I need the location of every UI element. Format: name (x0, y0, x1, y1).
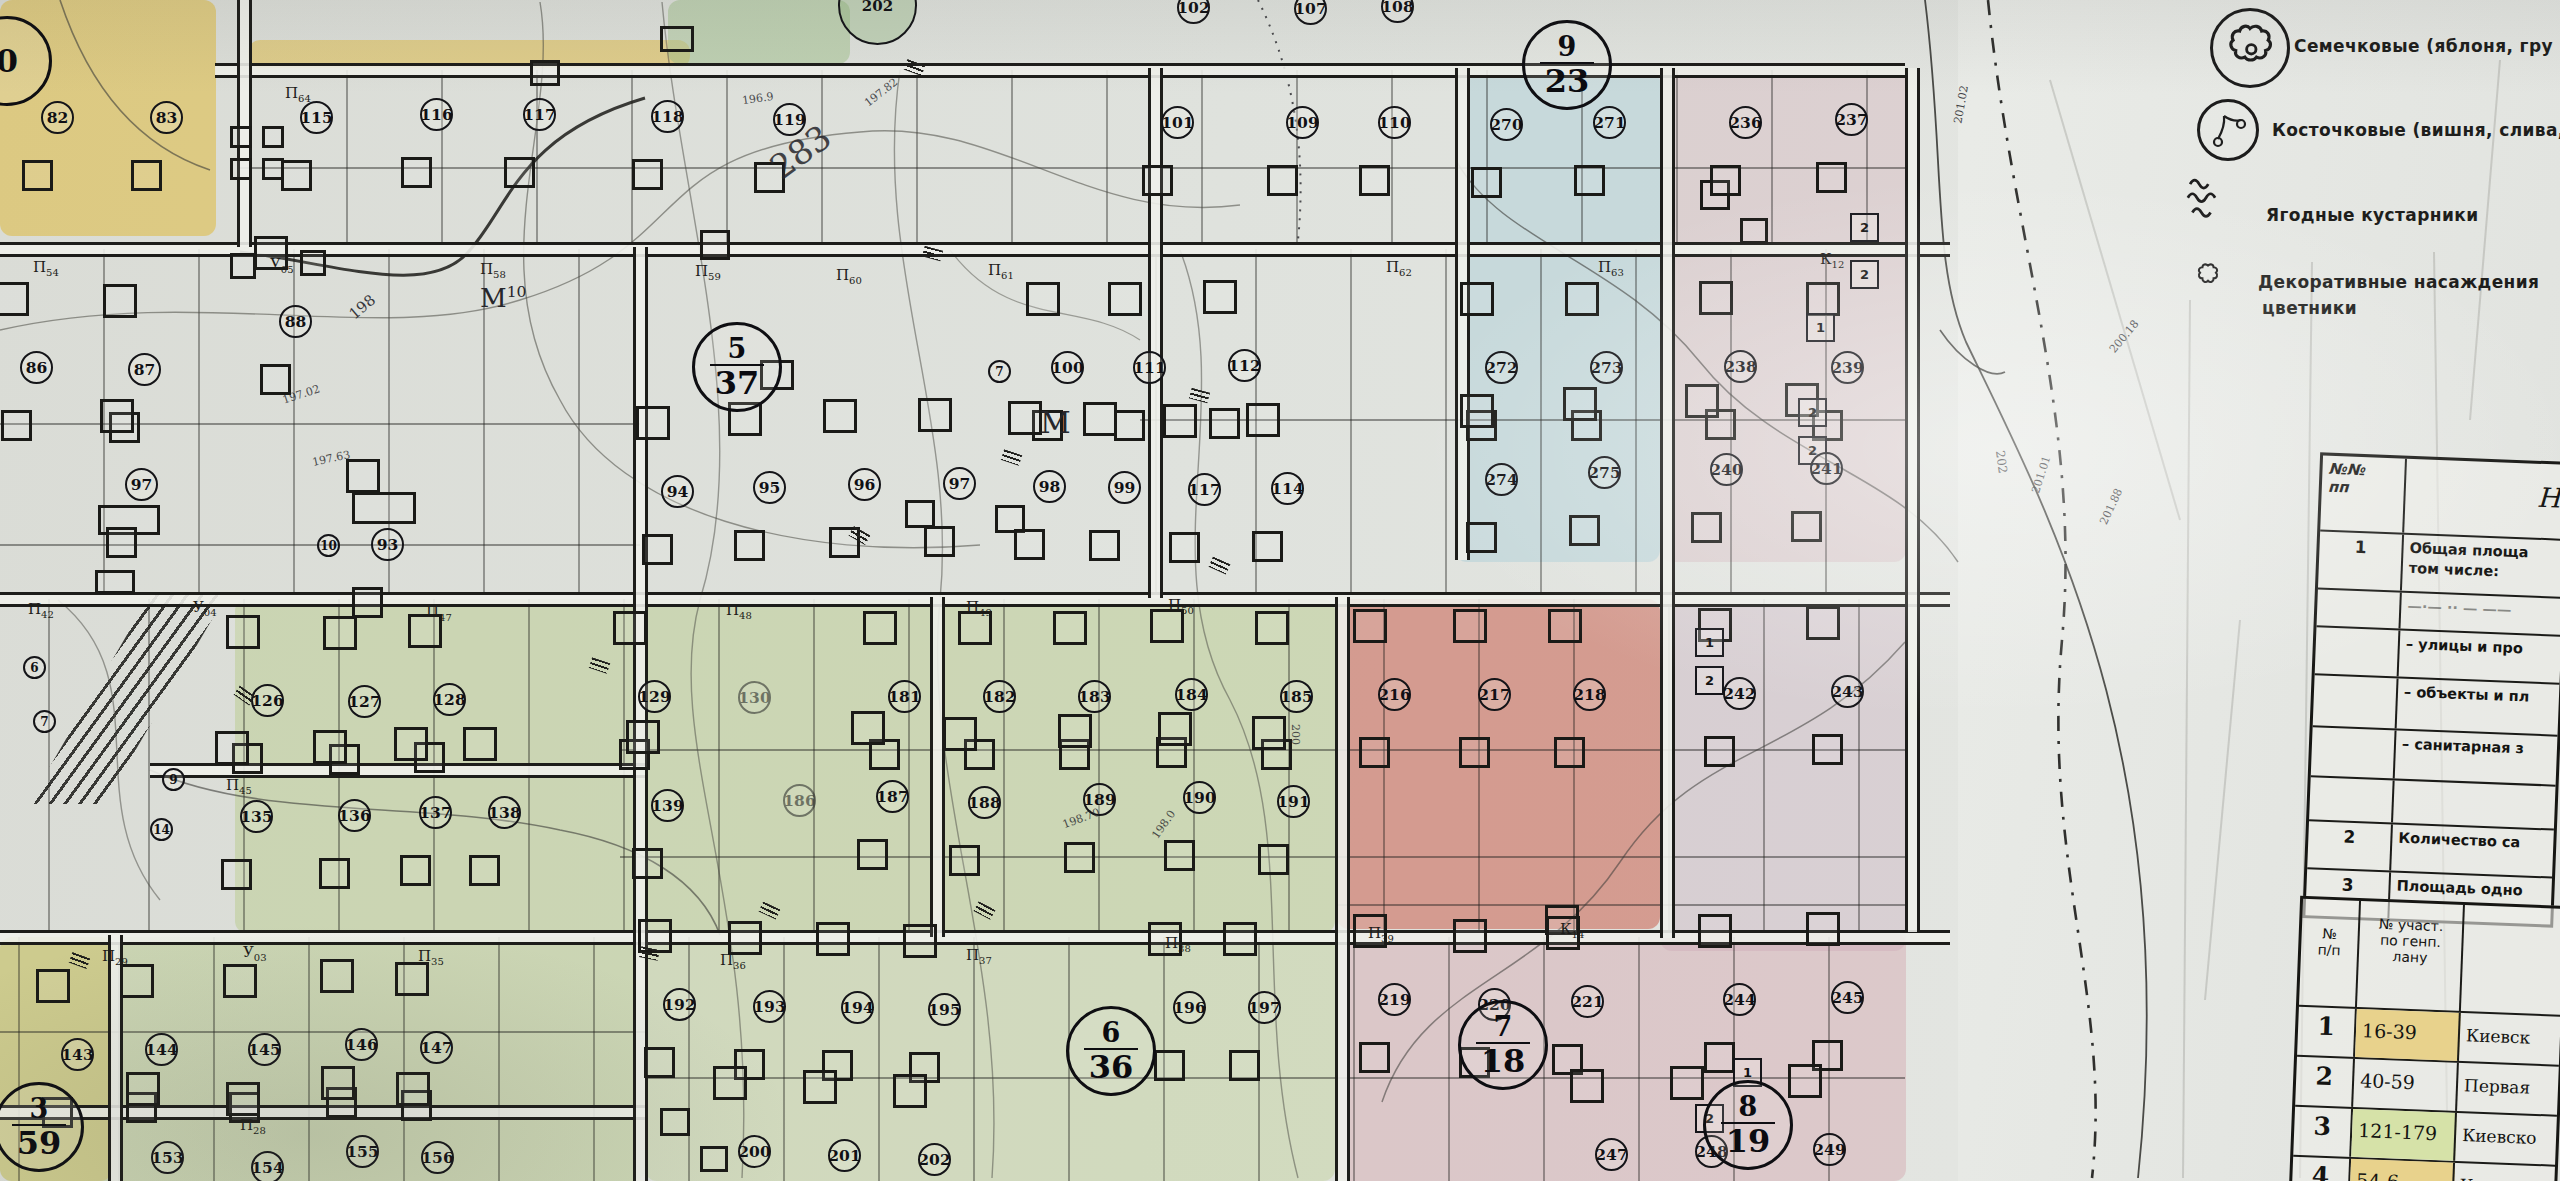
plot-square-x14 (530, 60, 560, 86)
plot-square-a37 (1246, 403, 1280, 437)
plot-square-b0 (22, 160, 53, 191)
t2-header-name (2461, 905, 2560, 1015)
road-horizontal-5 (0, 1105, 645, 1120)
road-vertical-1 (633, 247, 648, 1181)
plot-square-x12 (1740, 218, 1768, 244)
plot-circle-182: 182 (983, 680, 1016, 713)
road-label-П60: П60 (836, 266, 862, 286)
pome-fruit-icon (2210, 8, 2290, 88)
plot-square-a81 (223, 964, 257, 998)
plot-square-a60 (463, 727, 497, 761)
plot-circle-275: 275 (1588, 456, 1621, 489)
map-text-200.18-15: 200.18 (2107, 318, 2142, 356)
map-text-М-1: М (1040, 405, 1071, 440)
road-label-П39: П39 (1368, 924, 1394, 944)
plot-square-x1 (352, 492, 416, 524)
road-label-П38: П38 (1165, 934, 1191, 954)
road-vertical-3 (1148, 68, 1163, 598)
plot-circle-6: 6 (23, 656, 46, 679)
plot-circle-181: 181 (888, 680, 921, 713)
t2-row-2-name: Киевско (2455, 1113, 2557, 1165)
t2-header-num: №п/п (2299, 899, 2361, 1007)
plot-square-a75 (1453, 919, 1487, 953)
plot-circle-221: 221 (1571, 985, 1604, 1018)
plot-square-a30 (636, 406, 670, 440)
map-text-201.88-14: 201.88 (2097, 486, 2125, 526)
road-label-П58: П58 (480, 260, 506, 280)
plot-circle-239: 239 (1831, 351, 1864, 384)
plot-square-a84 (126, 1072, 160, 1106)
road-label-У03: У03 (243, 943, 267, 963)
plot-circle-184: 184 (1175, 678, 1208, 711)
plot-square-b37 (1252, 531, 1283, 562)
plot-circle-82: 82 (41, 101, 74, 134)
plot-circle-193: 193 (753, 990, 786, 1023)
plot-circle-200: 200 (738, 1135, 771, 1168)
plot-square-b63 (857, 839, 888, 870)
plot-circle-97: 97 (943, 467, 976, 500)
plot-square-a40 (1685, 384, 1719, 418)
plot-circle-7: 7 (988, 360, 1011, 383)
plot-square-a64 (943, 717, 977, 751)
plot-circle-183: 183 (1078, 680, 1111, 713)
plot-square-b53 (1459, 737, 1490, 768)
plot-circle-94: 94 (661, 475, 694, 508)
t2-row-1-num: 2 (2295, 1057, 2355, 1107)
map-text-М-0: М10 (480, 283, 526, 313)
section-marker-9-23: 923 (1522, 20, 1612, 110)
t1-row-6-label: Количество са (2391, 824, 2554, 876)
plot-square-b68 (644, 1047, 675, 1078)
plot-circle-145: 145 (248, 1033, 281, 1066)
plot-square-b56 (1812, 734, 1843, 765)
t2-row-2-num: 3 (2293, 1107, 2353, 1157)
plot-circle-191: 191 (1277, 785, 1310, 818)
plot-circle-127: 127 (348, 685, 381, 718)
plot-square-b60 (469, 855, 500, 886)
plot-square-b36 (1169, 532, 1200, 563)
plot-circle-130: 130 (738, 681, 771, 714)
plot-square-b8 (1267, 165, 1298, 196)
plot-square-a92 (1670, 1066, 1704, 1100)
plot-circle-118: 118 (651, 100, 684, 133)
plot-square-b40 (1691, 512, 1722, 543)
road-label-У05: У05 (270, 255, 294, 275)
plot-square-a42 (226, 615, 260, 649)
t1-row-5-label (2393, 780, 2555, 828)
plot-circle-135: 135 (240, 800, 273, 833)
road-label-П37: П37 (966, 946, 992, 966)
plot-square-a52 (1353, 609, 1387, 643)
t2-row-0-range: 16-39 (2355, 1009, 2461, 1061)
plot-square-x19 (700, 1146, 728, 1172)
legend-label-3-line2: цветники (2262, 298, 2357, 318)
plot-square-b29 (352, 587, 383, 618)
plot-square-a63 (851, 711, 885, 745)
plot-circle-197: 197 (1248, 991, 1281, 1024)
road-label-П36: П36 (720, 951, 746, 971)
t1-row-0-label: Общая площатом числе: (2402, 535, 2560, 597)
plot-circle-126: 126 (251, 684, 284, 717)
plot-square-a73 (1223, 922, 1257, 956)
road-vertical-7 (1905, 68, 1920, 932)
plot-square-a45 (613, 611, 647, 645)
plot-square-b11 (1574, 165, 1605, 196)
plot-square-a43 (323, 616, 357, 650)
plot-circle-95: 95 (753, 471, 786, 504)
plot-square-b64 (949, 845, 980, 876)
plot-circle-247: 247 (1595, 1138, 1628, 1171)
section-marker-8-19: 819 (1703, 1080, 1793, 1170)
plot-circle-272: 272 (1485, 351, 1518, 384)
plot-circle-243: 243 (1831, 675, 1864, 708)
plot-circle-190: 190 (1183, 781, 1216, 814)
plot-square-a77 (1698, 914, 1732, 948)
plot-circle-86: 86 (20, 351, 53, 384)
plot-square-b2 (281, 160, 312, 191)
plot-square-a59 (394, 727, 428, 761)
plot-circle-244: 244 (1723, 983, 1756, 1016)
road-label-П63: П63 (1598, 258, 1624, 278)
berry-bush-icon (2182, 176, 2230, 224)
boxed-label-2-6: 2 (1695, 666, 1724, 695)
plot-square-x6 (300, 250, 326, 276)
plot-square-b35 (1089, 530, 1120, 561)
plot-square-a23 (1203, 280, 1237, 314)
legend-label-0: Семечковые (яблоня, гру (2294, 36, 2553, 56)
plot-square-a20 (103, 284, 137, 318)
plot-circle-154: 154 (251, 1151, 284, 1181)
plot-square-a29 (346, 459, 380, 493)
road-label-П47: П47 (426, 603, 452, 623)
plot-square-b28 (106, 527, 137, 558)
plot-circle-242: 242 (1723, 677, 1756, 710)
t2-row-2-range: 121-179 (2351, 1109, 2457, 1161)
plot-square-b59 (400, 855, 431, 886)
plot-square-b30 (642, 534, 673, 565)
section-marker-7-18: 718 (1458, 1000, 1548, 1090)
boxed-label-2-3: 2 (1798, 398, 1827, 427)
road-label-К14: К14 (1560, 920, 1584, 940)
road-label-П48: П48 (726, 601, 752, 621)
plot-circle-186: 186 (783, 784, 816, 817)
plot-circle-110: 110 (1378, 106, 1411, 139)
land-summary-table: №№ппН1Общая площатом числе:—·— ·· — ——– … (2302, 452, 2560, 927)
t2-header-range: № участ.по генп.лану (2357, 901, 2465, 1011)
plot-square-b22 (1114, 410, 1145, 441)
plot-circle-88: 88 (279, 305, 312, 338)
plot-circle-236: 236 (1729, 106, 1762, 139)
plot-square-b23 (1209, 408, 1240, 439)
plot-square-a38 (1460, 394, 1494, 428)
plot-square-x8 (660, 26, 694, 52)
plot-circle-194: 194 (841, 991, 874, 1024)
plot-circle-273: 273 (1590, 351, 1623, 384)
plot-square-b39 (1569, 515, 1600, 546)
boxed-label-2-0: 2 (1850, 213, 1879, 242)
plot-square-b74 (1359, 1042, 1390, 1073)
plot-square-b41 (1791, 511, 1822, 542)
t1-row-4-label: – санитарная з (2395, 731, 2558, 785)
road-label-П50: П50 (1168, 596, 1194, 616)
plot-square-a89 (803, 1070, 837, 1104)
plot-circle-202: 202 (918, 1143, 951, 1176)
plot-circle-14: 14 (150, 818, 173, 841)
plot-square-a33 (918, 398, 952, 432)
road-label-У04: У04 (193, 598, 217, 618)
plot-circle-99: 99 (1108, 471, 1141, 504)
plot-circle-100: 100 (1051, 351, 1084, 384)
road-label-П61: П61 (988, 261, 1014, 281)
plot-square-b31 (734, 530, 765, 561)
plot-square-a27 (1806, 282, 1840, 316)
t2-row-0-name: Киевск (2459, 1013, 2560, 1065)
t2-row-3-name: Украинс (2453, 1163, 2555, 1181)
boxed-label-1-2: 1 (1806, 313, 1835, 342)
plot-circle-188: 188 (968, 786, 1001, 819)
plot-circle-117: 117 (523, 98, 556, 131)
plot-square-a47 (863, 611, 897, 645)
road-label-К12: К12 (1820, 250, 1844, 270)
plot-circle-139: 139 (651, 789, 684, 822)
road-label-П28: П28 (240, 1116, 266, 1136)
road-label-П45: П45 (226, 776, 252, 796)
plot-circle-155: 155 (346, 1135, 379, 1168)
plot-circle-245: 245 (1831, 981, 1864, 1014)
plot-square-a26 (1699, 281, 1733, 315)
plot-square-b9 (1359, 165, 1390, 196)
road-label-П29: П29 (102, 947, 128, 967)
plot-square-b54 (1554, 737, 1585, 768)
plot-square-a83 (395, 962, 429, 996)
plot-square-a56 (1806, 606, 1840, 640)
plot-circle-114: 114 (1271, 472, 1304, 505)
plot-square-b7 (1142, 165, 1173, 196)
plot-square-b65 (1064, 842, 1095, 873)
map-text-201.01-13: 201.01 (2029, 454, 2053, 495)
plot-square-b10 (1471, 167, 1502, 198)
t1-header-name: Н (2404, 459, 2560, 539)
plot-square-b19 (1, 410, 32, 441)
plot-square-a70 (816, 922, 850, 956)
t1-row-3-num (2313, 675, 2399, 728)
t2-row-1-name: Первая (2457, 1063, 2559, 1115)
plot-square-a28 (100, 399, 134, 433)
plot-circle-112: 112 (1228, 349, 1261, 382)
t2-row-3-num: 4 (2291, 1157, 2351, 1181)
plot-square-a36 (1163, 404, 1197, 438)
plot-square-a57 (215, 731, 249, 765)
plot-circle-218: 218 (1573, 678, 1606, 711)
plot-circle-10: 10 (317, 534, 340, 557)
plot-square-a87 (396, 1072, 430, 1106)
plot-square-a90 (893, 1074, 927, 1108)
plot-square-a35 (1083, 402, 1117, 436)
plot-square-a82 (320, 959, 354, 993)
plot-circle-153: 153 (151, 1141, 184, 1174)
plot-circle-146: 146 (345, 1028, 378, 1061)
t1-header-num: №№пп (2320, 455, 2407, 532)
plot-circle-144: 144 (145, 1033, 178, 1066)
plot-square-b1 (131, 160, 162, 191)
plot-circle-101: 101 (1161, 106, 1194, 139)
plot-square-a67 (1252, 716, 1286, 750)
plot-square-b5 (632, 159, 663, 190)
t1-row-1-label: —·— ·· — —— (2400, 593, 2560, 635)
plot-circle-237: 237 (1835, 103, 1868, 136)
plot-circle-271: 271 (1593, 106, 1626, 139)
plot-circle-137: 137 (419, 796, 452, 829)
t1-row-6-num: 2 (2307, 821, 2393, 870)
plot-circle-201: 201 (828, 1139, 861, 1172)
road-vertical-4 (1335, 597, 1350, 1181)
plot-square-a58 (313, 730, 347, 764)
t2-row-3-range: 54-6 (2349, 1159, 2455, 1181)
road-vertical-2 (930, 597, 945, 937)
plot-circle-216: 216 (1378, 678, 1411, 711)
plot-square-a61 (626, 720, 660, 754)
road-label-П35: П35 (418, 947, 444, 967)
plot-square-a34 (1008, 401, 1042, 435)
plot-square-x2 (230, 126, 252, 148)
plot-square-a79 (36, 969, 70, 1003)
road-label-П49: П49 (966, 598, 992, 618)
plot-circle-129: 129 (638, 680, 671, 713)
t2-row-0-num: 1 (2297, 1007, 2357, 1057)
plot-square-a25 (1565, 282, 1599, 316)
plot-square-a80 (120, 964, 154, 998)
plot-square-a69 (728, 921, 762, 955)
plot-square-a71 (903, 924, 937, 958)
plot-square-x15 (905, 500, 935, 528)
stone-fruit-icon (2197, 99, 2259, 161)
t1-row-2-num (2315, 627, 2401, 676)
plot-square-a22 (1108, 282, 1142, 316)
plot-square-b61 (632, 848, 663, 879)
road-horizontal-3 (150, 763, 645, 778)
plot-circle-136: 136 (338, 799, 371, 832)
plot-square-a86 (321, 1066, 355, 1100)
plot-square-a19 (0, 282, 29, 316)
boxed-label-2-1: 2 (1850, 260, 1879, 289)
plot-square-b57 (221, 859, 252, 890)
road-vertical-6 (1660, 68, 1675, 938)
t1-row-1-num (2317, 589, 2402, 628)
road-label-П54: П54 (33, 258, 59, 278)
plot-circle-274: 274 (1485, 463, 1518, 496)
plot-circle-240: 240 (1710, 453, 1743, 486)
plot-square-b34 (1014, 529, 1045, 560)
plot-circle-241: 241 (1810, 452, 1843, 485)
plot-square-a49 (1053, 611, 1087, 645)
plot-square-a85 (226, 1082, 260, 1116)
plot-circle-195: 195 (928, 993, 961, 1026)
plot-square-b3 (401, 157, 432, 188)
plot-square-a21 (1026, 282, 1060, 316)
plot-square-b72 (1154, 1050, 1185, 1081)
road-vertical-0 (237, 0, 252, 247)
t1-row-5-num (2309, 777, 2395, 822)
legend-label-2: Ягодные кустарники (2266, 205, 2478, 225)
plot-square-a65 (1058, 714, 1092, 748)
plot-square-a53 (1453, 609, 1487, 643)
plot-circle-128: 128 (433, 683, 466, 716)
section-marker-6-36: 636 (1066, 1006, 1156, 1096)
plot-circle-97: 97 (125, 468, 158, 501)
plot-circle-109: 109 (1286, 106, 1319, 139)
plot-circle-9: 9 (162, 768, 185, 791)
plot-square-b67 (1258, 844, 1289, 875)
plot-circle-156: 156 (421, 1141, 454, 1174)
legend-label-3: Декоративные насаждения (2258, 272, 2539, 292)
plot-circle-138: 138 (488, 796, 521, 829)
plot-square-x18 (660, 1108, 690, 1136)
plot-square-b77 (1704, 1042, 1735, 1073)
plot-circle-83: 83 (150, 101, 183, 134)
plot-square-b33 (924, 526, 955, 557)
plot-square-b52 (1359, 737, 1390, 768)
plot-square-a39 (1563, 387, 1597, 421)
color-zone-2 (668, 0, 850, 64)
plot-square-b73 (1229, 1050, 1260, 1081)
map-text-202-11: 202 (1993, 450, 2010, 474)
plot-circle-217: 217 (1478, 678, 1511, 711)
plot-square-a93 (1788, 1064, 1822, 1098)
plot-circle-98: 98 (1033, 470, 1066, 503)
road-horizontal-0 (215, 63, 1905, 78)
road-label-П62: П62 (1386, 258, 1412, 278)
plot-square-b13 (1816, 162, 1847, 193)
plot-circle-192: 192 (663, 988, 696, 1021)
plot-square-a24 (1460, 282, 1494, 316)
plot-square-x13 (95, 570, 135, 594)
plot-circle-196: 196 (1173, 991, 1206, 1024)
plot-circle-238: 238 (1724, 350, 1757, 383)
plot-square-b4 (504, 157, 535, 188)
t1-row-0-num: 1 (2318, 531, 2404, 590)
plot-square-b58 (319, 858, 350, 889)
road-label-П59: П59 (695, 262, 721, 282)
map-text-200-10: 200 (1289, 724, 1302, 745)
plot-square-b55 (1704, 736, 1735, 767)
plot-circle-87: 87 (128, 353, 161, 386)
road-horizontal-4 (0, 930, 1950, 945)
plot-square-b38 (1466, 522, 1497, 553)
road-label-П42: П42 (28, 600, 54, 620)
plot-square-a91 (1570, 1069, 1604, 1103)
plot-circle-7: 7 (33, 710, 56, 733)
sector-list-table: №п/п№ участ.по генп.лану116-39Киевск240-… (2288, 896, 2560, 1181)
plot-circle-115: 115 (300, 101, 333, 134)
t1-row-3-label: – объекты и пл (2397, 679, 2560, 735)
plot-square-a66 (1158, 712, 1192, 746)
legend-label-1: Косточковые (вишня, слива, (2272, 120, 2560, 140)
plot-square-x3 (262, 126, 284, 148)
plot-circle-111: 111 (1133, 351, 1166, 384)
t1-row-4-num (2311, 727, 2397, 778)
plot-circle-249: 249 (1813, 1133, 1846, 1166)
plot-square-a88 (713, 1066, 747, 1100)
plot-square-x4 (230, 158, 252, 180)
t1-row-2-label: – улицы и про (2399, 631, 2560, 683)
plot-square-a51 (1255, 611, 1289, 645)
plot-circle-96: 96 (848, 468, 881, 501)
plot-circle-219: 219 (1378, 983, 1411, 1016)
plot-square-a54 (1548, 609, 1582, 643)
road-label-П64: П64 (285, 84, 311, 104)
plot-circle-117: 117 (1188, 473, 1221, 506)
plot-circle-116: 116 (420, 98, 453, 131)
